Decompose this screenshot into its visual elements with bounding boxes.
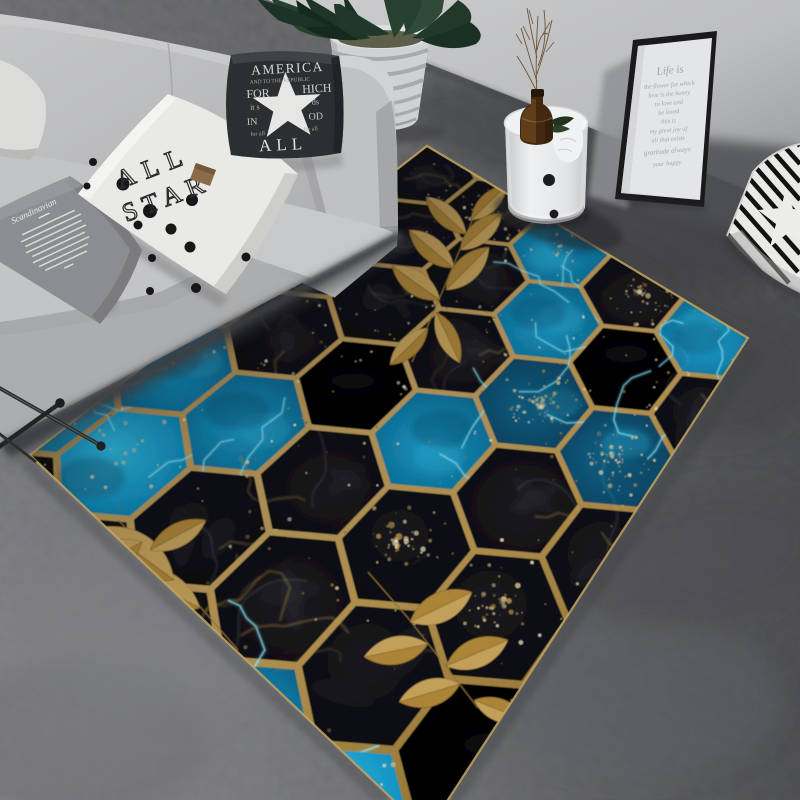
- svg-text:it s: it s: [250, 102, 260, 111]
- svg-text:Life is: Life is: [655, 63, 684, 77]
- svg-text:IN: IN: [247, 116, 258, 128]
- svg-text:FOR: FOR: [246, 86, 270, 101]
- svg-text:for all: for all: [303, 125, 318, 133]
- svg-text:OD: OD: [308, 111, 323, 123]
- svg-text:HICH: HICH: [302, 81, 332, 97]
- svg-text:ds: ds: [312, 97, 320, 106]
- svg-text:this is: this is: [661, 117, 677, 125]
- svg-text:ALL: ALL: [259, 134, 308, 155]
